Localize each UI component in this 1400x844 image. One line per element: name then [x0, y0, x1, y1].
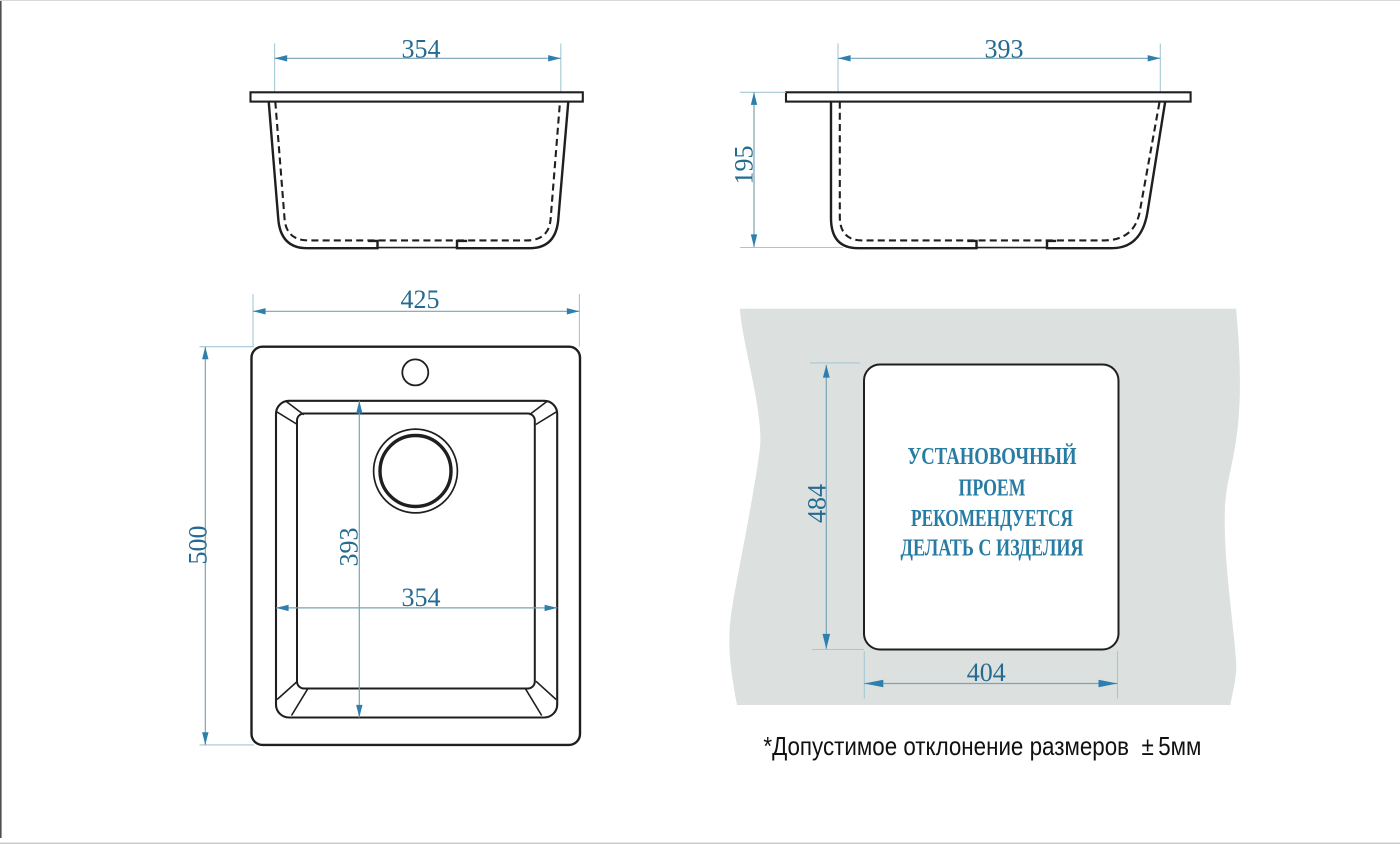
svg-text:393: 393: [985, 35, 1024, 64]
svg-text:ПРОЕМ: ПРОЕМ: [959, 475, 1026, 501]
svg-text:ДЕЛАТЬ С ИЗДЕЛИЯ: ДЕЛАТЬ С ИЗДЕЛИЯ: [901, 535, 1084, 561]
svg-text:*Допустимое отклонение размеро: *Допустимое отклонение размеров ± 5мм: [763, 731, 1201, 761]
svg-text:500: 500: [184, 526, 213, 565]
svg-text:354: 354: [402, 583, 441, 612]
svg-text:393: 393: [334, 528, 363, 567]
svg-text:195: 195: [729, 146, 758, 185]
svg-text:484: 484: [803, 484, 832, 523]
svg-text:РЕКОМЕНДУЕТСЯ: РЕКОМЕНДУЕТСЯ: [911, 506, 1073, 532]
svg-text:354: 354: [402, 35, 441, 64]
svg-text:404: 404: [967, 658, 1006, 687]
svg-text:УСТАНОВОЧНЫЙ: УСТАНОВОЧНЫЙ: [908, 444, 1077, 470]
svg-text:425: 425: [401, 285, 440, 314]
